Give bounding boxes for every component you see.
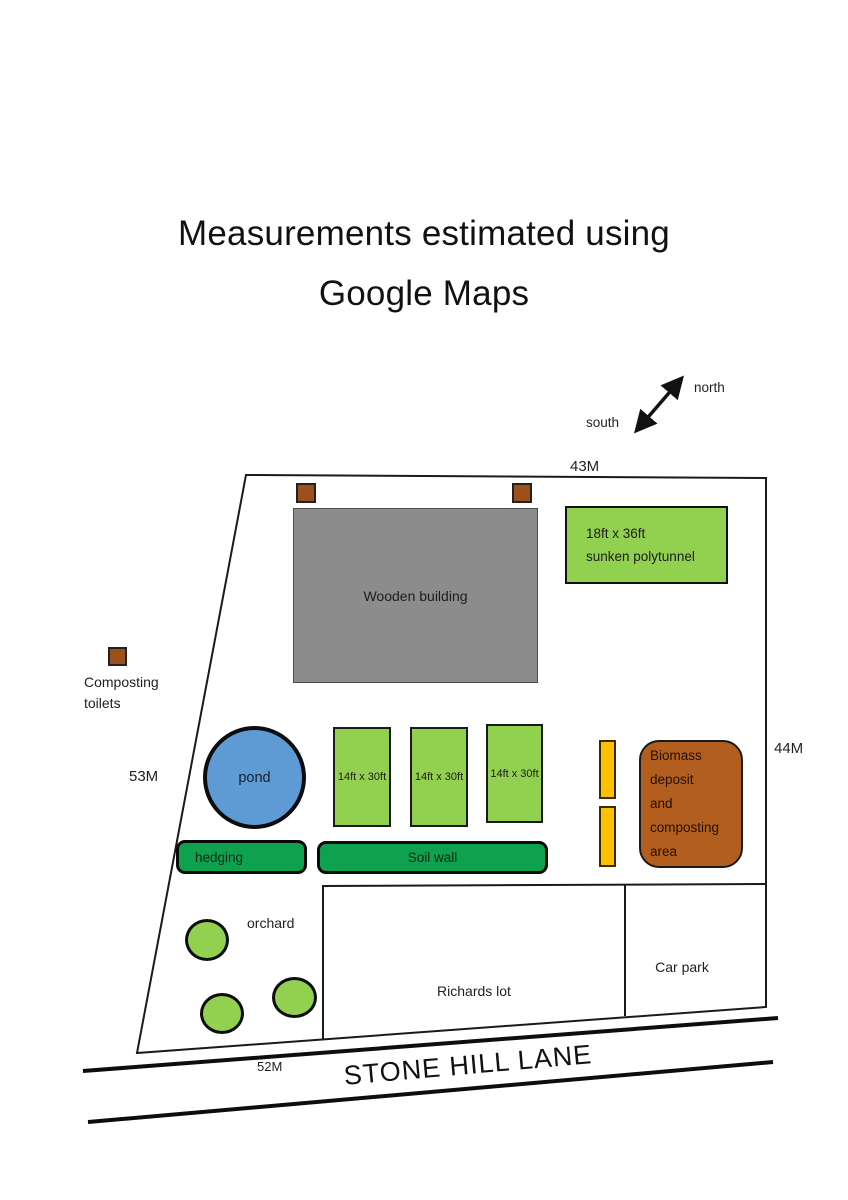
biomass-area: Biomass deposit and composting area [639,740,743,868]
crop-plot-2-label: 14ft x 30ft [415,771,463,783]
crop-plot-1-label: 14ft x 30ft [338,771,386,783]
composting-toilets-label-line1: Composting [84,672,159,693]
composting-toilets-marker-icon [108,647,127,666]
toilet-marker-icon [296,483,316,503]
measurement-right: 44M [774,740,803,757]
compass-north-label: north [694,380,725,395]
polytunnel-name-label: sunken polytunnel [586,545,726,568]
measurement-left: 53M [129,768,158,785]
site-plan-diagram: Measurements estimated using Google Maps… [0,0,848,1200]
orchard-tree-icon [200,993,244,1034]
biomass-label-line1: Biomass deposit [650,744,741,792]
crop-plot-3: 14ft x 30ft [486,724,543,823]
measurement-top: 43M [570,458,599,475]
crop-plot-3-label: 14ft x 30ft [490,768,538,780]
crop-plot-2: 14ft x 30ft [410,727,468,827]
orchard-tree-icon [272,977,317,1018]
compass-south-label: south [586,415,619,430]
wooden-building: Wooden building [293,508,538,683]
hedging-label: hedging [195,850,243,865]
compass-arrow-icon [637,379,681,430]
wooden-building-label: Wooden building [363,588,467,604]
orchard-label: orchard [247,915,294,931]
measurement-bottom: 52M [257,1059,282,1074]
polytunnel-size-label: 18ft x 36ft [586,522,726,545]
orchard-tree-icon [185,919,229,961]
page-title-line1: Measurements estimated using [0,214,848,254]
biomass-label-line3: area [650,840,741,864]
yellow-bar-2 [599,806,616,867]
biomass-label-line2: and composting [650,792,741,840]
composting-toilets-label-line2: toilets [84,693,159,714]
richards-lot-label: Richards lot [323,983,625,999]
composting-toilets-label: Composting toilets [84,672,159,714]
hedging-bar: hedging [176,840,307,874]
toilet-marker-icon [512,483,532,503]
pond: pond [203,726,306,829]
soil-wall-bar: Soil wall [317,841,548,874]
page-title-line2: Google Maps [0,274,848,314]
soil-wall-label: Soil wall [408,850,458,865]
pond-label: pond [238,770,270,786]
polytunnel: 18ft x 36ft sunken polytunnel [565,506,728,584]
yellow-bar-1 [599,740,616,799]
car-park-label: Car park [612,959,752,975]
crop-plot-1: 14ft x 30ft [333,727,391,827]
